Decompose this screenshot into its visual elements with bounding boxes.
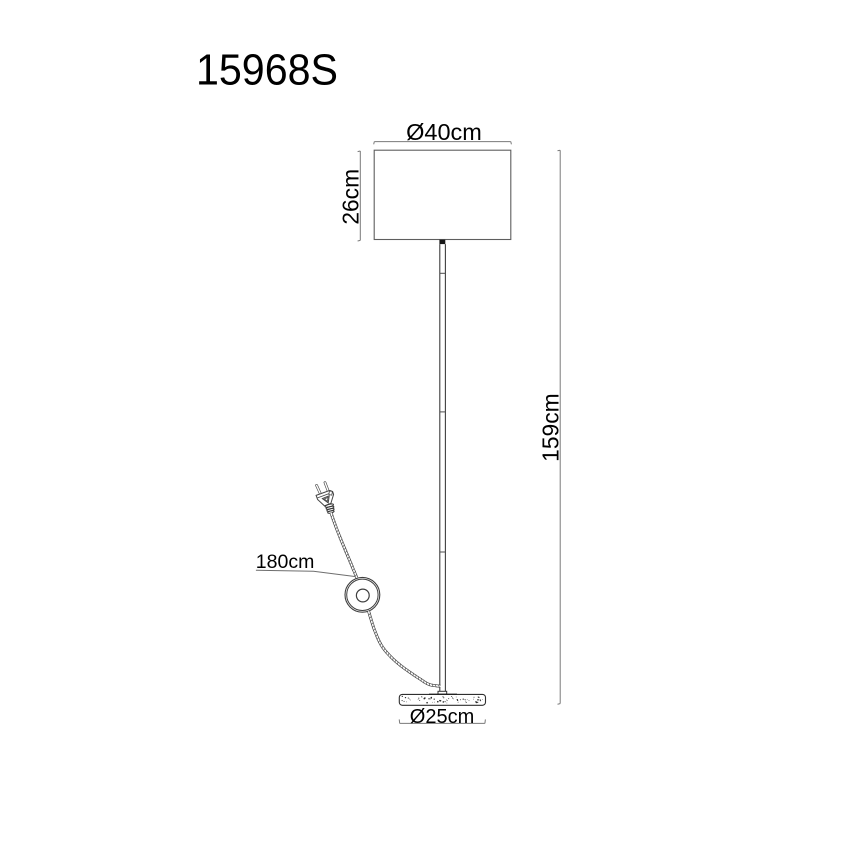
svg-text:180cm: 180cm	[256, 551, 315, 573]
svg-text:Ø40cm: Ø40cm	[406, 119, 482, 145]
svg-text:159cm: 159cm	[537, 393, 563, 461]
svg-text:15968S: 15968S	[196, 46, 338, 95]
svg-text:26cm: 26cm	[337, 169, 363, 225]
svg-text:Ø25cm: Ø25cm	[410, 706, 474, 728]
